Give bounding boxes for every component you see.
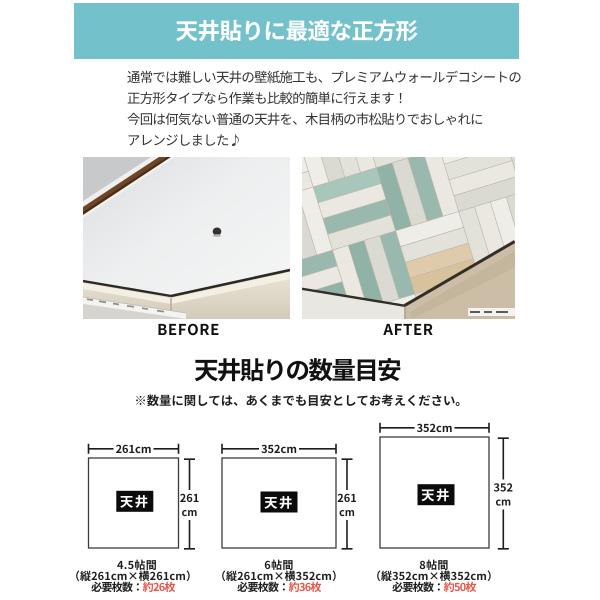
svg-text:261: 261	[337, 490, 356, 506]
svg-text:天井: 天井	[120, 491, 150, 511]
svg-text:261: 261	[180, 490, 199, 506]
svg-text:261cm: 261cm	[116, 441, 152, 457]
svg-text:cm: cm	[182, 505, 198, 520]
svg-text:352cm: 352cm	[417, 420, 453, 436]
svg-text:cm: cm	[495, 495, 511, 510]
svg-text:cm: cm	[339, 505, 355, 520]
svg-text:352: 352	[494, 480, 513, 496]
svg-text:352cm: 352cm	[261, 441, 297, 457]
svg-text:天井: 天井	[264, 491, 294, 511]
svg-text:天井: 天井	[421, 484, 451, 504]
